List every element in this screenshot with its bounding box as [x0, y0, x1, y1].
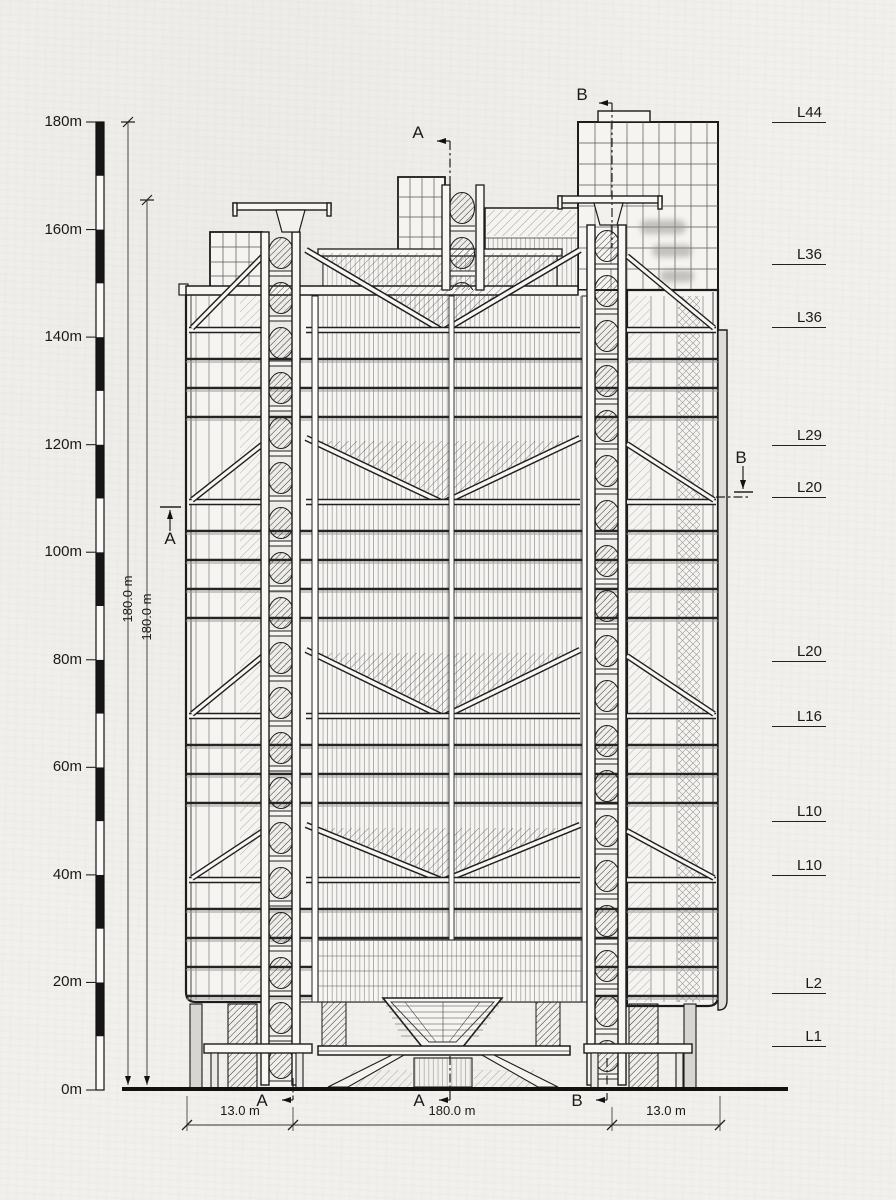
scale-band — [96, 176, 104, 230]
scale-band — [96, 552, 104, 606]
scale-band — [96, 445, 104, 499]
ground-line — [122, 1087, 788, 1091]
left-mast — [261, 232, 300, 1085]
atrium-glass-belly — [383, 998, 502, 1048]
scale-band — [96, 283, 104, 337]
central-curtain-wall — [300, 290, 590, 1002]
scale-band — [96, 606, 104, 660]
scale-band — [96, 1036, 104, 1090]
scale-band — [96, 875, 104, 929]
left-wing — [186, 290, 263, 1002]
center-mini-mast — [442, 185, 484, 290]
scale-band — [96, 714, 104, 768]
scale-band — [96, 498, 104, 552]
scale-band — [96, 767, 104, 821]
scale-band — [96, 122, 104, 176]
right-wing — [627, 290, 727, 1010]
right-mast — [587, 225, 626, 1085]
scale-band — [96, 929, 104, 983]
paper-background: { "drawing": { "type": "architectural-el… — [0, 0, 896, 1200]
scale-band — [96, 982, 104, 1036]
scale-band — [96, 660, 104, 714]
plan-dimension-line — [182, 1096, 725, 1131]
scale-band — [96, 821, 104, 875]
height-dimension-lines — [121, 117, 154, 1085]
scale-band — [96, 230, 104, 284]
elevation-drawing — [0, 0, 896, 1200]
scale-band — [96, 337, 104, 391]
scale-bar — [86, 122, 104, 1090]
scale-band — [96, 391, 104, 445]
left-crane — [233, 203, 331, 232]
